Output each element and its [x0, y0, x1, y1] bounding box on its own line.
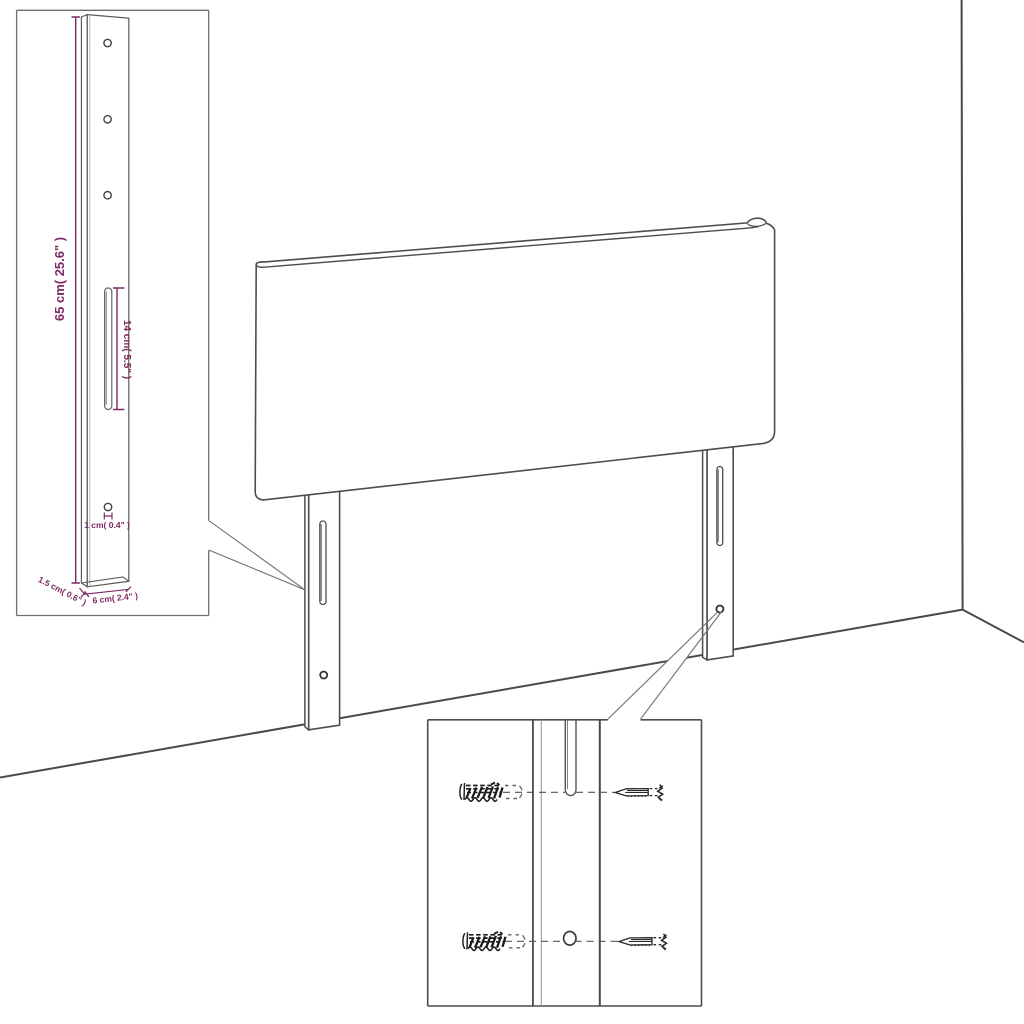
svg-text:1 cm( 0.4" ): 1 cm( 0.4" ) [84, 520, 130, 530]
svg-text:14 cm( 5.5" ): 14 cm( 5.5" ) [121, 320, 132, 379]
svg-text:65 cm( 25.6" ): 65 cm( 25.6" ) [52, 237, 67, 321]
